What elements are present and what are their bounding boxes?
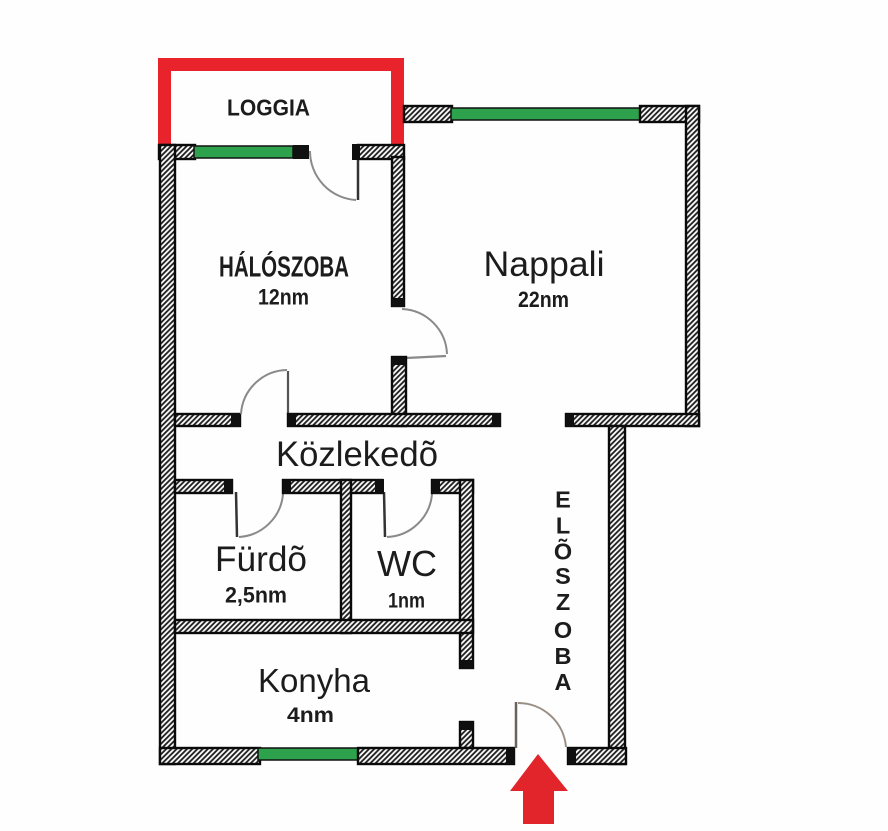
svg-text:S: S (555, 563, 571, 589)
svg-text:4nm: 4nm (287, 703, 334, 727)
svg-text:Z: Z (556, 589, 570, 615)
svg-text:Nappali: Nappali (484, 244, 605, 284)
svg-text:1nm: 1nm (388, 590, 425, 613)
svg-text:B: B (555, 643, 572, 669)
svg-text:A: A (555, 669, 572, 695)
svg-text:E: E (555, 487, 571, 513)
svg-text:22nm: 22nm (518, 287, 569, 312)
svg-text:Õ: Õ (554, 538, 572, 565)
svg-text:HÁLÓSZOBA: HÁLÓSZOBA (219, 250, 349, 284)
svg-text:Közlekedõ: Közlekedõ (276, 435, 438, 474)
svg-text:Konyha: Konyha (258, 663, 370, 700)
svg-text:2,5nm: 2,5nm (225, 583, 287, 608)
svg-text:O: O (554, 617, 572, 643)
svg-text:WC: WC (377, 543, 437, 584)
svg-text:LOGGIA: LOGGIA (227, 95, 310, 121)
svg-text:Fürdõ: Fürdõ (215, 540, 307, 579)
svg-text:L: L (556, 513, 570, 539)
svg-text:12nm: 12nm (258, 285, 309, 310)
